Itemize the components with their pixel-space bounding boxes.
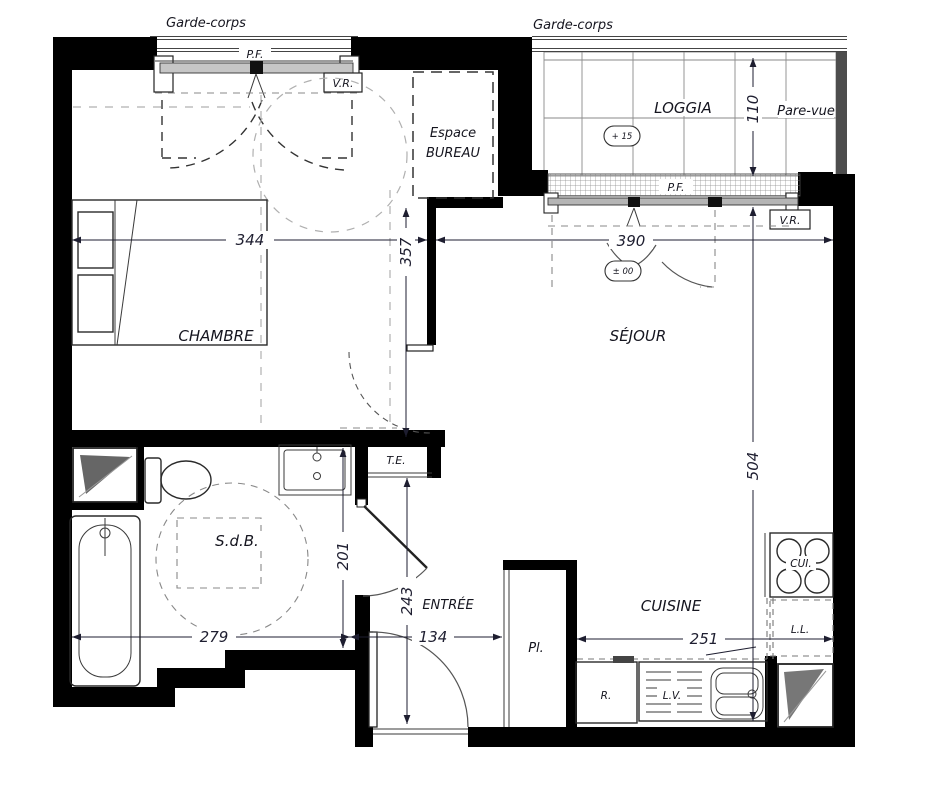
placard-label: Pl. (528, 641, 544, 656)
guardrail-label-right: Garde-corps (533, 18, 613, 33)
pare-vue-label: Pare-vue (777, 104, 835, 119)
cooktop-label: CUI. (790, 558, 811, 570)
level-marker-loggia: + 15 (604, 126, 640, 146)
pare-vue-screen (836, 52, 847, 176)
guardrail-label-left: Garde-corps (166, 16, 246, 31)
room-label-sdb: S.d.B. (215, 532, 259, 550)
washer-label: L.L. (791, 624, 809, 636)
bureau-label-line1: Espace (430, 126, 476, 141)
dim-sejour-width: 390 (617, 232, 646, 250)
dim-entree-depth: 243 (398, 587, 416, 616)
dim-loggia-depth: 110 (744, 95, 762, 124)
room-label-entree: ENTRÉE (422, 597, 474, 613)
dim-entree-width: 134 (419, 628, 448, 646)
dim-sdb-width: 279 (200, 628, 229, 646)
fridge-label: R. (601, 690, 612, 702)
dim-chambre-depth: 357 (397, 237, 415, 266)
window-label-vr-chambre: V.R. (333, 77, 354, 90)
room-label-loggia: LOGGIA (654, 99, 712, 117)
window-label-pf-chambre: P.F. (246, 48, 263, 61)
dim-cuisine-width: 251 (690, 630, 719, 648)
level-loggia-text: + 15 (612, 132, 633, 142)
dishwasher-label: L.V. (663, 690, 682, 702)
window-label-pf-sejour: P.F. (667, 181, 684, 194)
dim-sejour-depth: 504 (744, 452, 762, 481)
level-sejour-text: ± 00 (613, 267, 634, 277)
te-label: T.E. (386, 454, 405, 467)
level-marker-sejour: ± 00 (605, 261, 641, 281)
floor-plan: + 15 ± 00 Garde-corps Garde-corps P.F. V… (0, 0, 944, 800)
duct-shaft-kitchen (778, 664, 833, 727)
room-label-sejour: SÉJOUR (610, 326, 667, 345)
duct-shaft-sdb (73, 448, 137, 502)
window-label-vr-sejour: V.R. (780, 214, 801, 227)
dim-chambre-width: 344 (236, 231, 265, 249)
room-label-cuisine: CUISINE (641, 597, 702, 615)
dim-sdb-depth: 201 (334, 542, 352, 571)
bureau-label-line2: BUREAU (426, 146, 481, 161)
room-label-chambre: CHAMBRE (178, 327, 254, 345)
